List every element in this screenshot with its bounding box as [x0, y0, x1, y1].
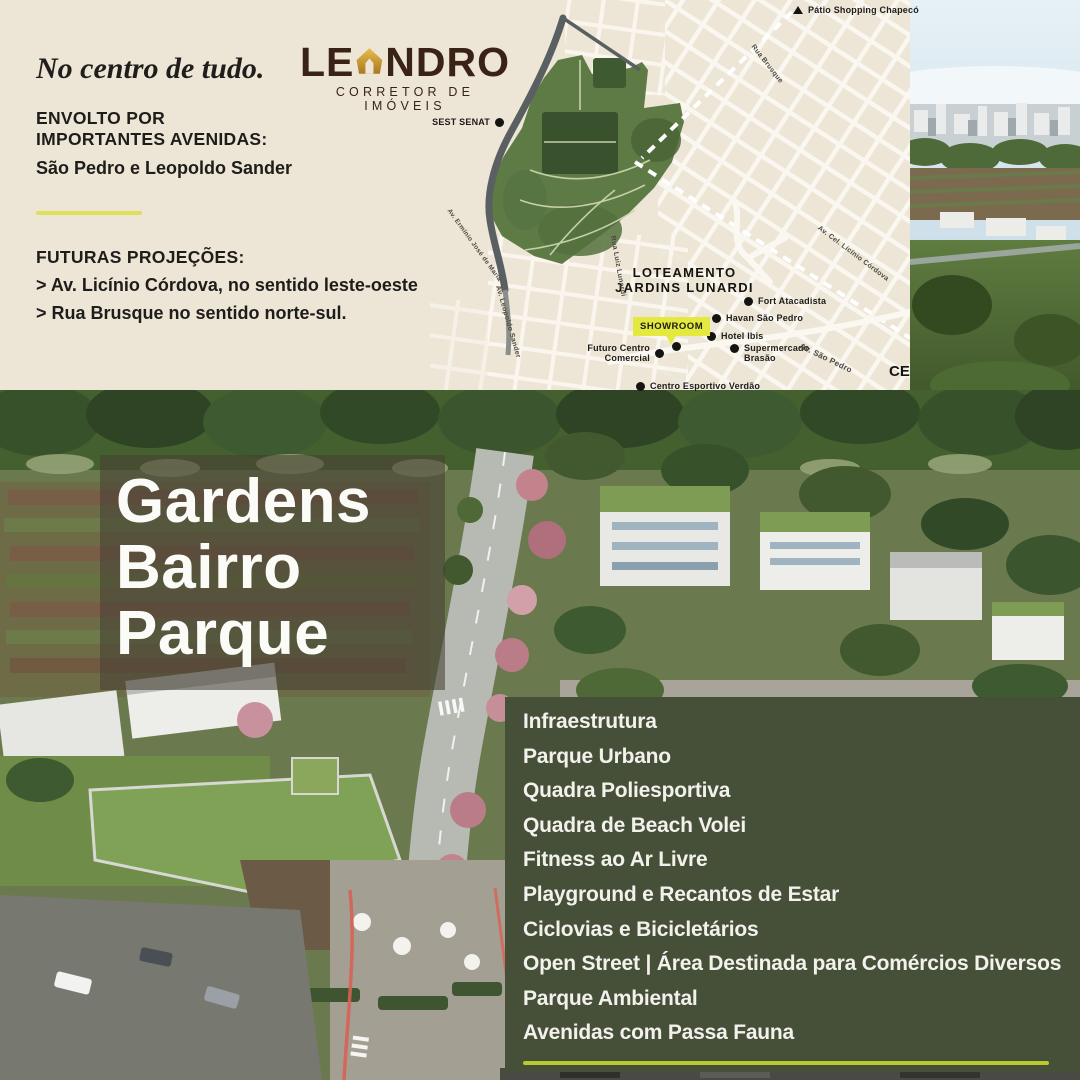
map-dot — [730, 344, 739, 353]
projection-item-2: > Rua Brusque no sentido norte-sul. — [36, 302, 418, 324]
map-corner-label: CE — [889, 364, 910, 380]
amenity-item: Open Street | Área Destinada para Comérc… — [523, 947, 1080, 982]
logo-name: LE NDRO — [300, 40, 510, 84]
project-title-line2: Bairro — [116, 535, 445, 601]
projections-block: FUTURAS PROJEÇÕES: > Av. Licínio Córdova… — [36, 246, 418, 324]
showroom-callout: SHOWROOM — [633, 317, 710, 336]
map-dot — [636, 382, 645, 391]
amenity-item: Parque Ambiental — [523, 982, 1080, 1017]
avenues-block: ENVOLTO POR IMPORTANTES AVENIDAS: São Pe… — [36, 108, 292, 179]
map-dot — [655, 349, 664, 358]
avenues-names: São Pedro e Leopoldo Sander — [36, 157, 292, 179]
amenity-item: Fitness ao Ar Livre — [523, 843, 1080, 878]
divider-line — [36, 211, 142, 215]
project-title-line1: Gardens — [116, 469, 445, 535]
amenity-item: Quadra de Beach Volei — [523, 809, 1080, 844]
projection-item-1: > Av. Licínio Córdova, no sentido leste-… — [36, 274, 418, 296]
poi-sest-senat: SEST SENAT — [418, 117, 504, 127]
real-estate-flyer: No centro de tudo. LE NDRO CORRETOR DE I… — [0, 0, 1080, 1080]
city-aerial-photo — [910, 0, 1080, 390]
triangle-marker-icon — [793, 6, 803, 14]
brand-logo: LE NDRO CORRETOR DE IMÓVEIS — [300, 40, 510, 113]
amenity-item: Infraestrutura — [523, 705, 1080, 740]
accent-underline — [523, 1061, 1049, 1065]
map-dot — [495, 118, 504, 127]
amenity-item: Parque Urbano — [523, 740, 1080, 775]
showroom-map-dot — [672, 342, 681, 351]
poi-centro-esportivo-verdao: Centro Esportivo Verdão — [636, 381, 760, 391]
info-panel: No centro de tudo. LE NDRO CORRETOR DE I… — [0, 0, 910, 390]
map-dot — [744, 297, 753, 306]
hero-title-overlay: Gardens Bairro Parque — [100, 455, 445, 690]
amenity-item: Quadra Poliesportiva — [523, 774, 1080, 809]
poi-fort-atacadista: Fort Atacadista — [744, 296, 826, 306]
map-dot — [712, 314, 721, 323]
project-title: Gardens Bairro Parque — [100, 455, 445, 667]
amenity-item: Playground e Recantos de Estar — [523, 878, 1080, 913]
amenity-item: Avenidas com Passa Fauna — [523, 1016, 1080, 1051]
avenues-heading-line2: IMPORTANTES AVENIDAS: — [36, 129, 292, 150]
logo-text-start: LE — [300, 40, 354, 84]
amenities-panel: Infraestrutura Parque Urbano Quadra Poli… — [505, 697, 1080, 1072]
amenities-list: Infraestrutura Parque Urbano Quadra Poli… — [505, 697, 1080, 1051]
poi-hotel-ibis: Hotel Ibis — [707, 331, 764, 341]
amenity-item: Ciclovias e Bicicletários — [523, 913, 1080, 948]
poi-patio-shopping: Pátio Shopping Chapecó — [793, 5, 919, 15]
avenues-heading-line1: ENVOLTO POR — [36, 108, 292, 129]
project-title-line3: Parque — [116, 601, 445, 667]
projections-title: FUTURAS PROJEÇÕES: — [36, 246, 418, 268]
tagline: No centro de tudo. — [36, 52, 264, 86]
house-icon — [355, 43, 384, 78]
poi-futuro-centro-comercial: Futuro Centro Comercial — [580, 343, 664, 363]
loteamento-label: LOTEAMENTO JARDINS LUNARDI — [612, 265, 757, 295]
logo-subtitle: CORRETOR DE IMÓVEIS — [300, 85, 510, 113]
logo-text-end: NDRO — [385, 40, 510, 84]
poi-havan-sao-pedro: Havan São Pedro — [712, 313, 803, 323]
